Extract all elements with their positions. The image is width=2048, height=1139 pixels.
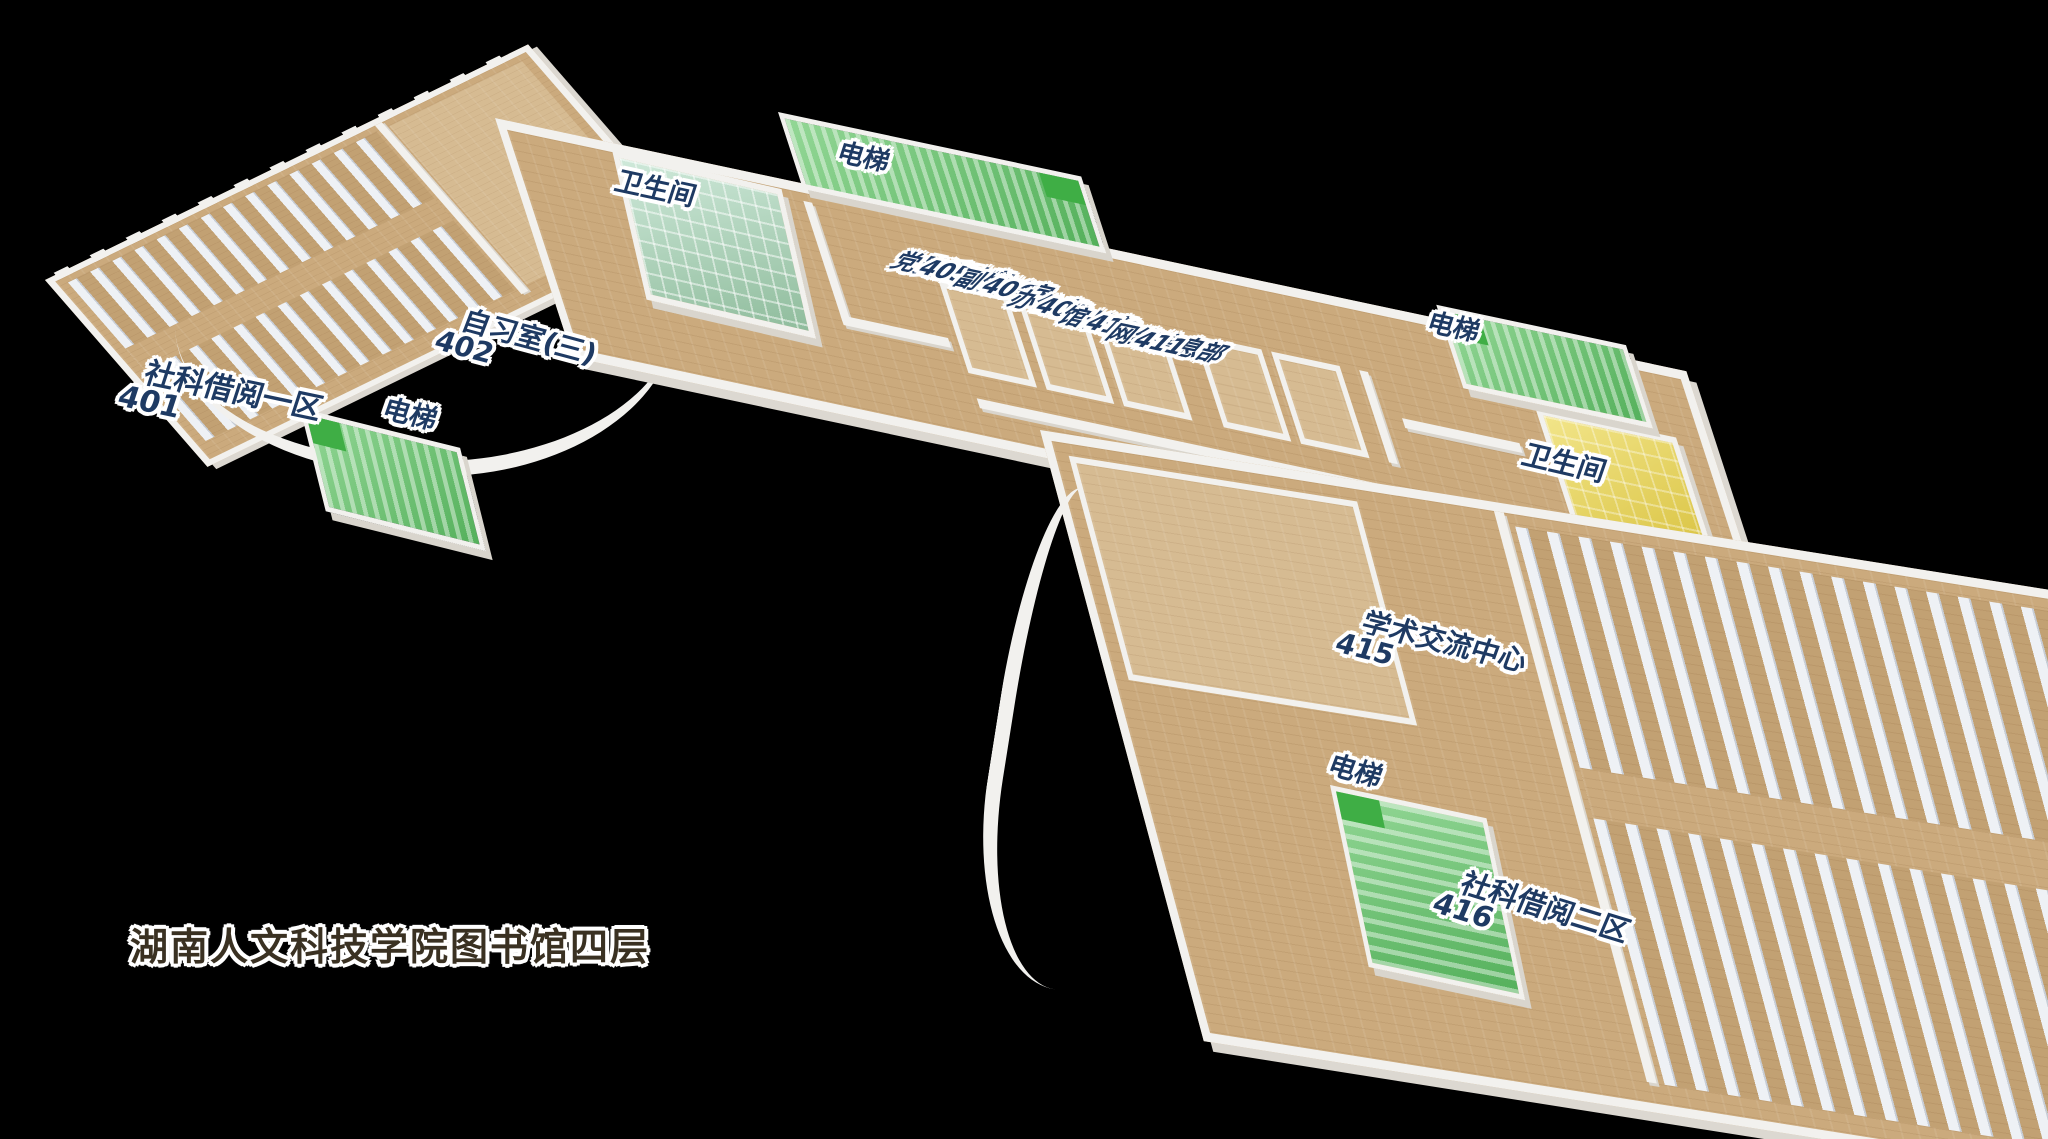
map-title: 湖南人文科技学院图书馆四层 xyxy=(130,928,650,968)
room-411[interactable] xyxy=(1271,352,1369,459)
wall-segment xyxy=(803,201,851,324)
floorplan-canvas: 社科借阅一区 401 自习室(三) 402 电梯 卫生间 电梯 党员活动室 40… xyxy=(0,0,2048,1139)
wall-segment xyxy=(1402,418,1523,453)
wall-segment xyxy=(840,315,951,348)
